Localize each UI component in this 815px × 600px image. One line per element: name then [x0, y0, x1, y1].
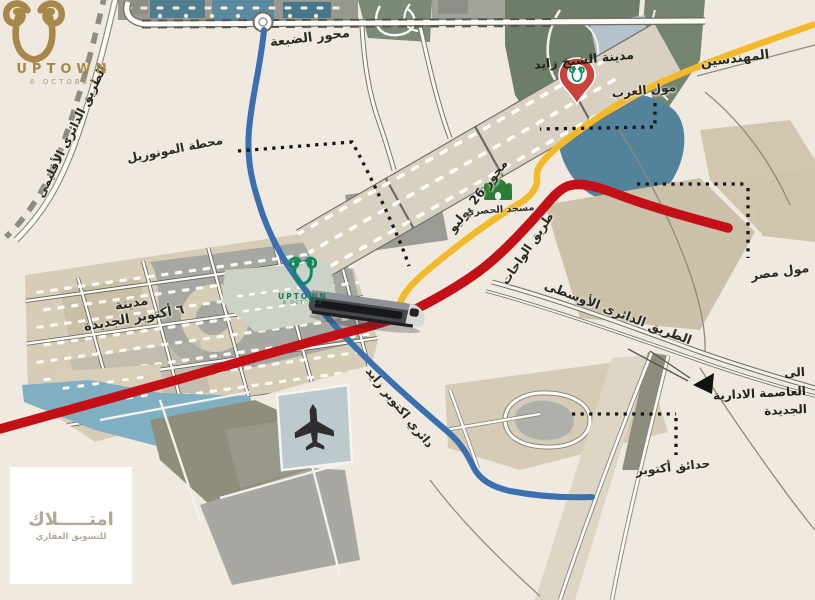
- brand-tagline: 6 OCTOBER: [4, 78, 124, 86]
- area-top-city-blocks: [118, 0, 358, 20]
- label-to-capital: الى العاصمة الادارية الجديدة: [687, 363, 808, 425]
- map-canvas: الطريق الدائرى الأقليمى محور الضبعة محور…: [0, 0, 815, 600]
- project-tagline: 6 OCTOBER: [258, 301, 348, 306]
- uptown-brand-logo: UPTOWN 6 OCTOBER: [4, 62, 124, 86]
- watermark-subtitle: للتسويق العقاري: [36, 532, 107, 542]
- brand-name: UPTOWN: [4, 62, 124, 77]
- emtelak-watermark: امتـــــلاك للتسويق العقاري: [10, 467, 132, 584]
- uptown-project-logo: UPTOWN 6 OCTOBER: [258, 292, 348, 306]
- regional-ring-road: [6, 0, 116, 240]
- uptown-brand-mark: [6, 4, 61, 60]
- watermark-title: امتـــــلاك: [28, 509, 114, 530]
- project-name: UPTOWN: [258, 292, 348, 301]
